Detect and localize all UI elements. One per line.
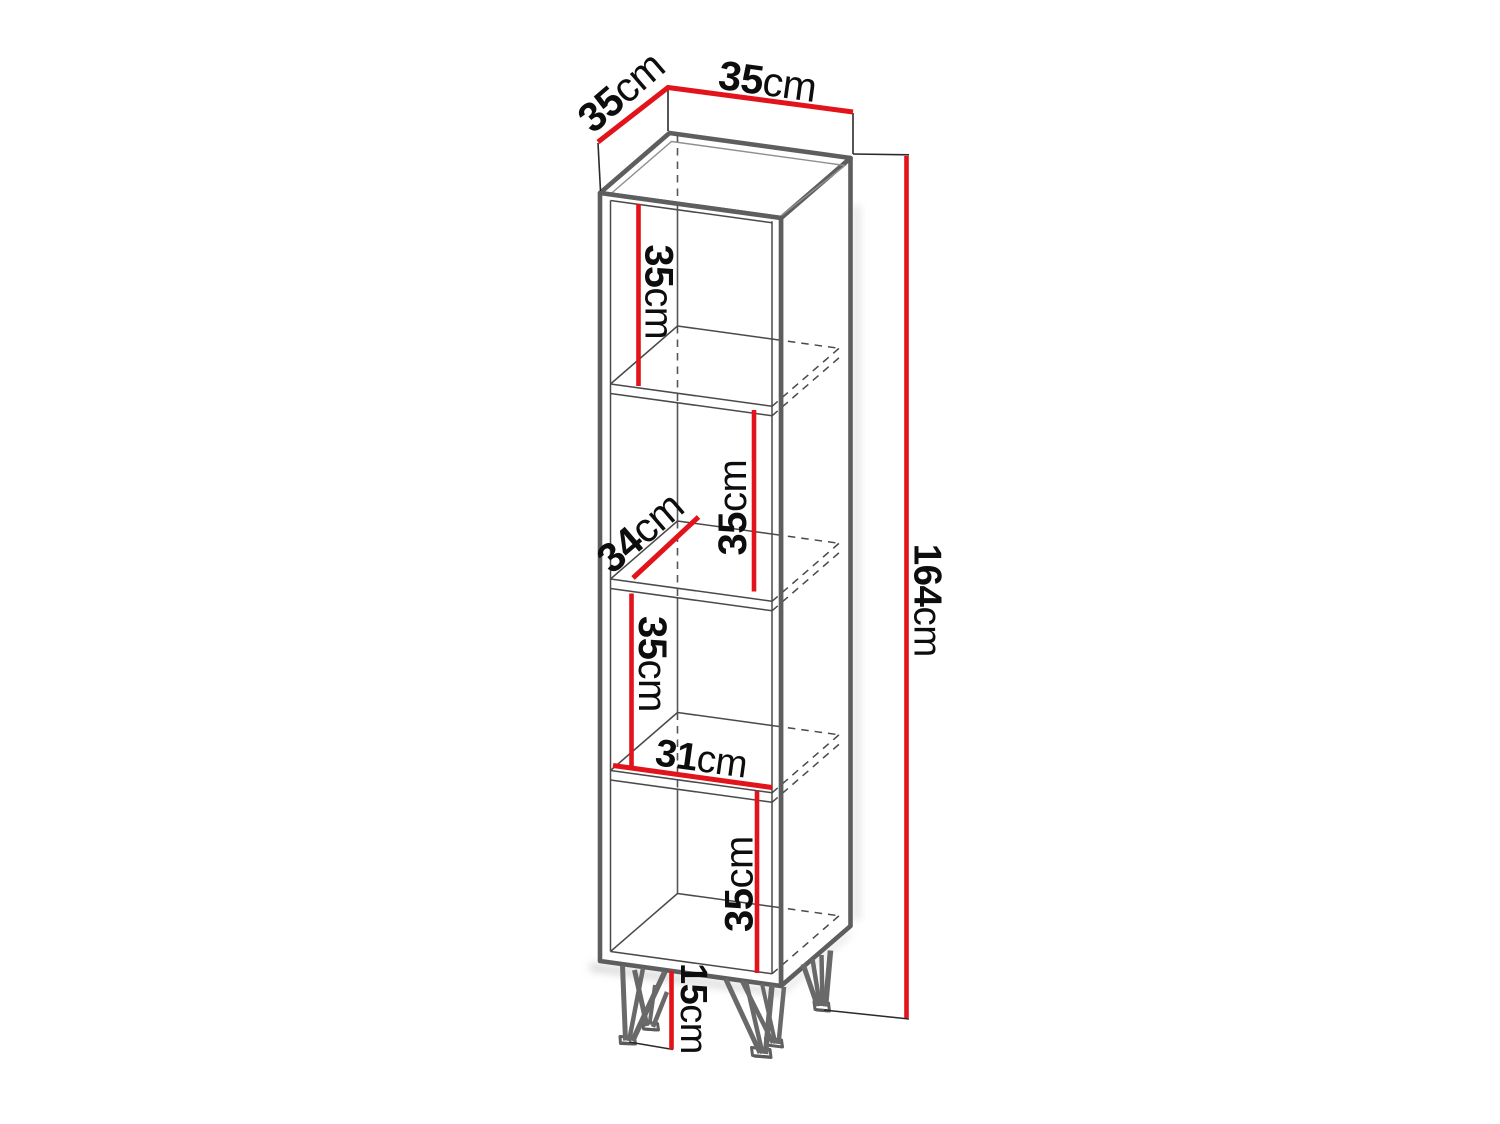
svg-text:35cm: 35cm bbox=[711, 460, 755, 556]
svg-text:15cm: 15cm bbox=[672, 963, 714, 1054]
svg-text:35cm: 35cm bbox=[716, 52, 820, 111]
svg-text:35cm: 35cm bbox=[718, 836, 762, 932]
svg-text:35cm: 35cm bbox=[636, 245, 680, 340]
svg-text:164cm: 164cm bbox=[906, 544, 949, 657]
svg-text:35cm: 35cm bbox=[630, 616, 674, 712]
